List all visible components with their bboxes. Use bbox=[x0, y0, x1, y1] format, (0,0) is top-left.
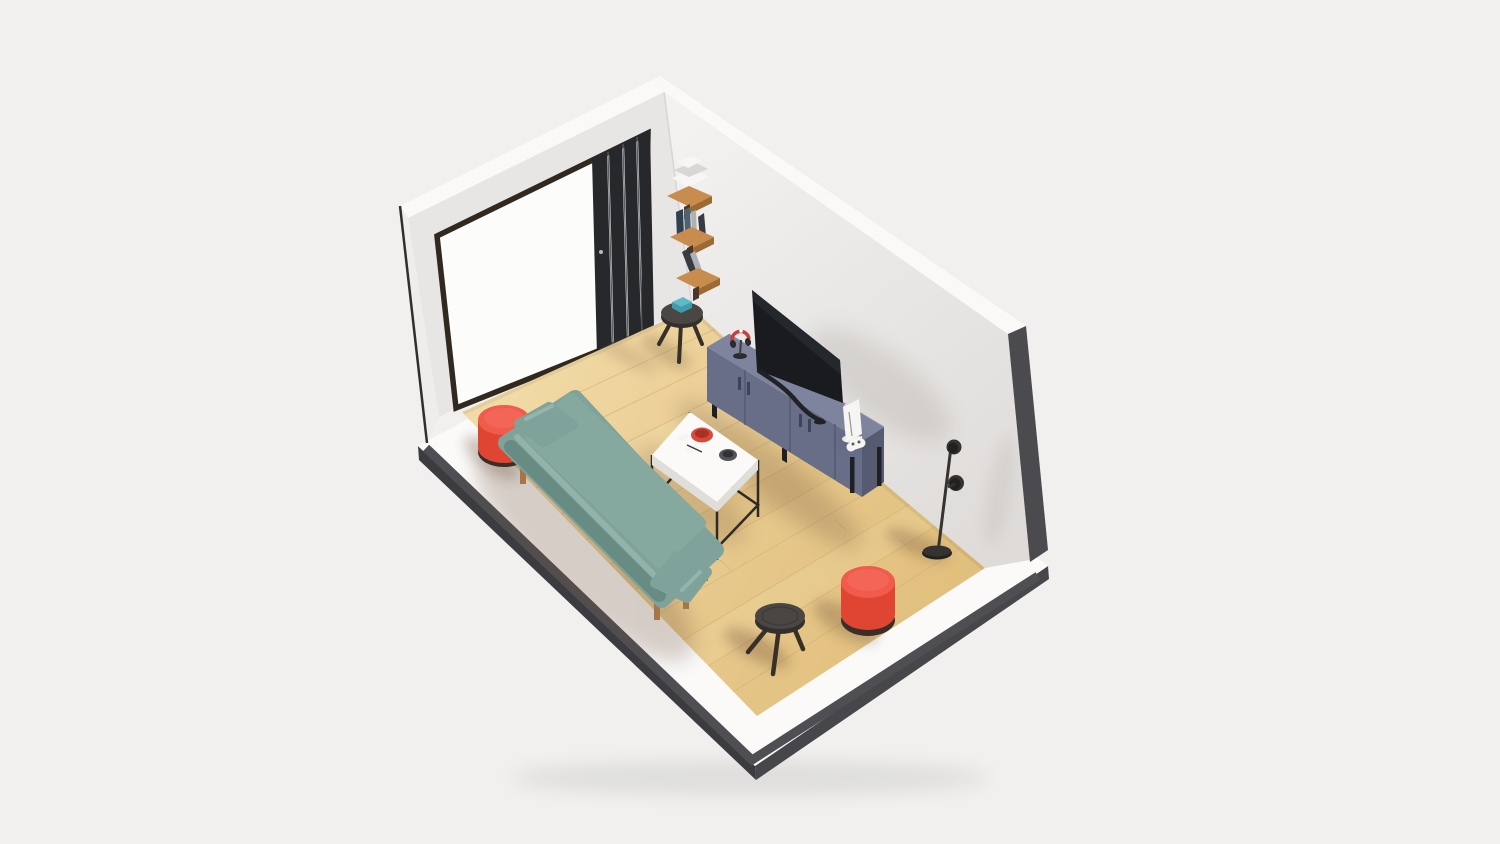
controller-grip bbox=[857, 439, 866, 448]
headphone-accent bbox=[739, 329, 743, 333]
controller-stick bbox=[852, 443, 855, 446]
room-render bbox=[0, 0, 1500, 844]
door-handle-slot bbox=[738, 377, 741, 390]
sideboard-end-leg bbox=[850, 457, 855, 493]
door-handle-slot bbox=[799, 414, 802, 427]
lamp-head-upper-face bbox=[948, 443, 958, 454]
side-table-leg bbox=[679, 323, 681, 362]
sideboard-end-leg bbox=[877, 447, 882, 486]
folding-doors bbox=[592, 129, 654, 356]
pouf-right bbox=[841, 566, 895, 636]
door-handle-slot bbox=[747, 382, 750, 395]
isometric-room-scene bbox=[0, 0, 1500, 844]
red-bowl-inner bbox=[695, 429, 709, 438]
gray-dish-inner bbox=[723, 451, 734, 458]
door-handle-slot bbox=[808, 419, 811, 432]
tv-stand-foot bbox=[814, 420, 826, 425]
pouf-top-highlight bbox=[847, 569, 889, 591]
controller-stick bbox=[858, 441, 861, 444]
headphone-stand bbox=[740, 340, 741, 355]
door-handle bbox=[599, 250, 603, 254]
